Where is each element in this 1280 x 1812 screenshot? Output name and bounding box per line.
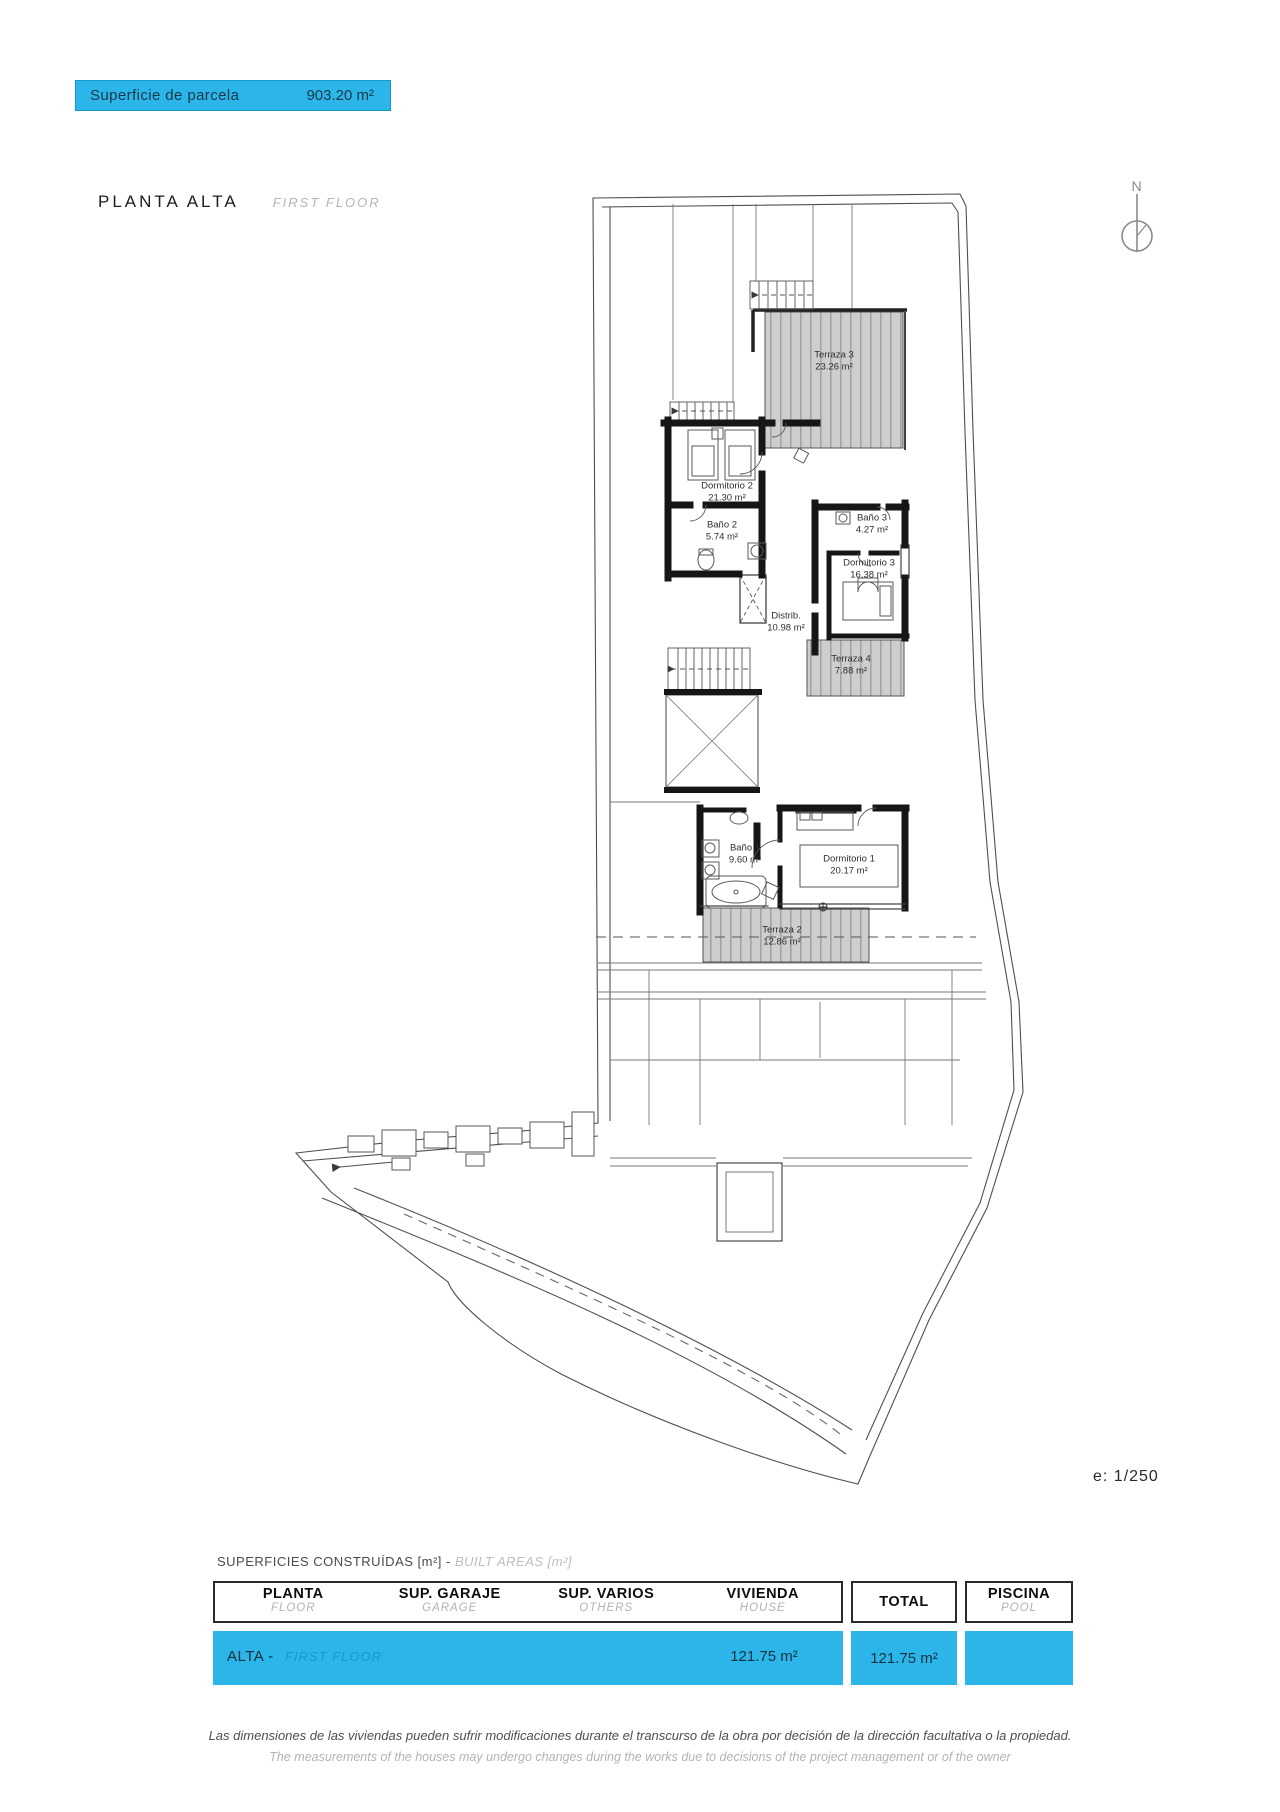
parcel-boundary [296,194,1023,1484]
carport-elements [348,1112,594,1170]
room-label-bano-2: Baño 25.74 m² [706,520,738,545]
room-label-terraza-3: Terraza 323.26 m² [814,350,854,375]
header-vivienda: VIVIENDA HOUSE [685,1583,842,1621]
header-planta: PLANTA FLOOR [215,1583,372,1621]
header-varios: SUP. VARIOS OTHERS [528,1583,685,1621]
row-total-value: 121.75 m² [870,1650,938,1667]
row-house-value: 121.75 m² [685,1648,843,1665]
room-label-dormitorio-2: Dormitorio 221.30 m² [701,481,753,506]
floor-plan-drawing [0,0,1280,1812]
table-row-total-cell: 121.75 m² [851,1631,957,1685]
room-label-dormitorio-3: Dormitorio 316.38 m² [843,558,895,583]
room-label-terraza-4: Terraza 47.88 m² [831,654,871,679]
table-row-alta: ALTA - FIRST FLOOR 121.75 m² [213,1631,843,1685]
caption-spanish: SUPERFICIES CONSTRUÍDAS [m²] - [217,1554,455,1569]
room-label-dormitorio-1: Dormitorio 120.17 m² [823,854,875,879]
caption-english: BUILT AREAS [m²] [455,1554,572,1569]
room-label-distribuidor: Distrib.10.98 m² [767,611,805,636]
room-label-terraza-2: Terraza 212.86 m² [762,925,802,950]
stairwell-void [664,692,762,790]
room-label-bano-3: Baño 34.27 m² [856,513,888,538]
header-piscina: PISCINA POOL [965,1581,1073,1623]
scale-label: e: 1/250 [1093,1468,1159,1486]
header-total: TOTAL [851,1581,957,1623]
elevator-shaft [740,575,766,623]
room-label-bano-1: Baño 19.60 m² [729,843,761,868]
areas-table-caption: SUPERFICIES CONSTRUÍDAS [m²] - BUILT ARE… [217,1554,572,1569]
header-garaje: SUP. GARAJE GARAGE [372,1583,529,1621]
row-floor-label: ALTA - [227,1648,274,1665]
row-floor-label-en: FIRST FLOOR [285,1649,382,1664]
table-row-piscina-cell [965,1631,1073,1685]
disclaimer-english: The measurements of the houses may under… [150,1750,1130,1764]
disclaimer-spanish: Las dimensiones de las viviendas pueden … [150,1728,1130,1743]
terrace-hatches [596,310,976,962]
floor-plan-page: Superficie de parcela 903.20 m² PLANTA A… [0,0,1280,1812]
areas-table-header: PLANTA FLOOR SUP. GARAJE GARAGE SUP. VAR… [213,1581,843,1623]
